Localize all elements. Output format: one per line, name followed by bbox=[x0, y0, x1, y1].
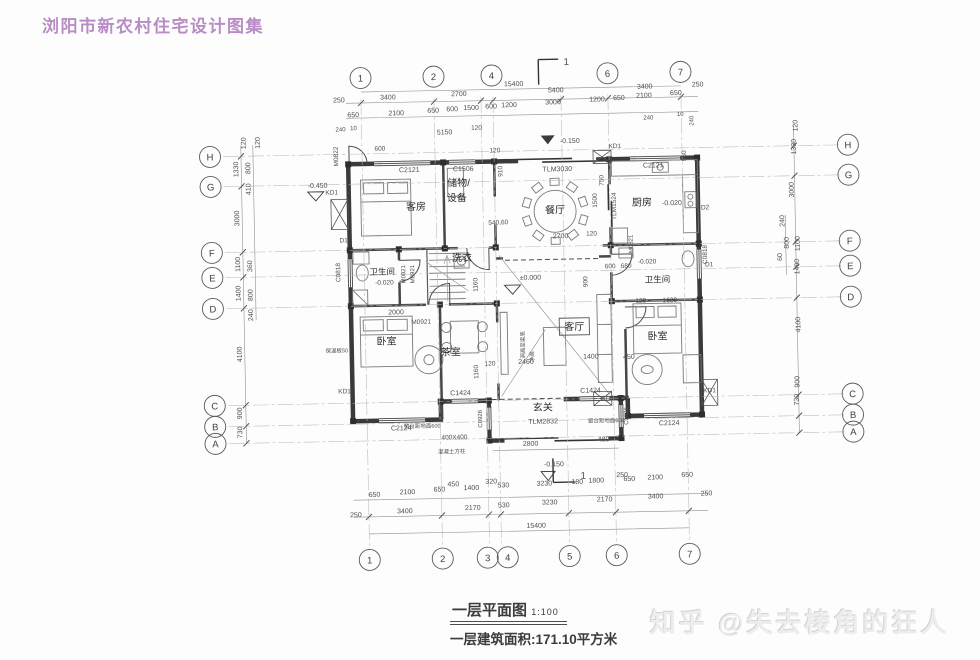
dim-label: 1160 bbox=[473, 364, 480, 378]
dim-label: 730 bbox=[794, 394, 801, 406]
room-label: 卫生间 bbox=[369, 266, 395, 276]
dim-label: 120 bbox=[635, 298, 646, 305]
room-label: 玄关 bbox=[533, 400, 553, 413]
dim-label: -0.020 bbox=[662, 200, 682, 207]
dim-label: -0.150 bbox=[544, 461, 564, 468]
dim-label: 4100 bbox=[237, 346, 244, 362]
axis-bubble-label: F bbox=[847, 236, 853, 247]
dim-label: 120 bbox=[586, 231, 597, 238]
dim-label: D2 bbox=[701, 204, 710, 211]
axis-bubble-label: H bbox=[206, 152, 213, 163]
dim-label: C2124 bbox=[659, 420, 680, 427]
dim-label: KD1 bbox=[338, 388, 351, 395]
room-label: 客房 bbox=[406, 200, 426, 213]
dim-label: 250 bbox=[692, 81, 704, 88]
dim-label: 650 bbox=[427, 108, 439, 115]
dim-label: 650 bbox=[613, 95, 625, 102]
dim-label: 600 bbox=[605, 263, 616, 270]
dim-label: ±0.000 bbox=[520, 275, 542, 282]
dim-label: 3400 bbox=[397, 508, 413, 515]
floor-plan-drawing: 124671234567HGFEDCBAHGFEDCBA154002503400… bbox=[0, 0, 980, 660]
dim-label: -0.150 bbox=[560, 138, 580, 145]
axis-bubble-label: D bbox=[209, 304, 216, 315]
dim-label: 2460 bbox=[518, 359, 534, 366]
room-label: 洗衣 bbox=[452, 251, 472, 264]
dim-label: 1500 bbox=[592, 193, 599, 208]
dim-label: 5400 bbox=[548, 87, 564, 94]
dim-label: 250 bbox=[350, 512, 362, 519]
room-label: 设备 bbox=[447, 191, 467, 204]
dim-label: 1500 bbox=[463, 105, 479, 112]
room-label: 储物/ bbox=[447, 176, 470, 189]
drawing-caption: 一层平面图 1:100 一层建筑面积:171.10平方米 bbox=[450, 599, 617, 648]
dim-label: 1 bbox=[580, 471, 586, 482]
dim-label: 600 bbox=[446, 106, 458, 113]
axis-bubble-label: C bbox=[849, 389, 856, 400]
dim-label: C1424 bbox=[580, 387, 601, 394]
dim-label: 2800 bbox=[523, 441, 539, 448]
level-marks bbox=[307, 135, 562, 485]
dim-label: 530 bbox=[497, 482, 509, 489]
axis-bubble-label: E bbox=[209, 273, 216, 284]
axis-bubble-label: F bbox=[209, 248, 215, 259]
dim-label: 3400 bbox=[380, 94, 396, 101]
dim-label: C0818 bbox=[335, 262, 342, 282]
dim-label: 240 bbox=[335, 127, 346, 133]
dim-label: 650 bbox=[681, 472, 693, 479]
dim-label: 2100 bbox=[400, 489, 416, 496]
room-label: 卧室 bbox=[647, 329, 667, 342]
dim-label: 800 bbox=[784, 237, 791, 249]
drawing-name: 一层平面图 bbox=[452, 602, 527, 619]
dim-label: 1400 bbox=[583, 353, 599, 360]
room-label: 卧室 bbox=[376, 334, 396, 347]
dim-label: 530 bbox=[498, 502, 510, 509]
dim-label: 250 bbox=[333, 97, 345, 104]
dim-label: 2000 bbox=[388, 309, 404, 316]
dim-label: C0926 bbox=[624, 406, 630, 424]
dim-label: 900 bbox=[794, 376, 801, 388]
axis-bubble-label: 7 bbox=[678, 67, 684, 78]
dim-label: 保温板50 bbox=[325, 346, 348, 354]
dim-label: 650 bbox=[347, 112, 359, 119]
room-label: 客厅 bbox=[564, 320, 584, 333]
dim-label: 2170 bbox=[597, 496, 613, 503]
dim-label: 3230 bbox=[542, 499, 558, 506]
dim-label: TLM1524 bbox=[611, 192, 619, 220]
dim-label: 1 bbox=[563, 57, 569, 68]
axis-bubble-label: 7 bbox=[687, 549, 693, 560]
axis-bubble-label: 4 bbox=[489, 71, 495, 82]
axis-bubble-label: B bbox=[212, 422, 219, 433]
axis-bubble-label: 6 bbox=[614, 551, 620, 562]
dim-label: C1424 bbox=[450, 390, 471, 397]
axis-bubble-label: 5 bbox=[567, 552, 573, 563]
axis-bubble-label: 2 bbox=[431, 72, 437, 83]
dim-label: 120 bbox=[792, 120, 799, 132]
drawing-area-note: 一层建筑面积:171.10平方米 bbox=[450, 628, 617, 648]
dim-label: 10 bbox=[350, 126, 357, 132]
dim-label: 3400 bbox=[648, 493, 664, 500]
scanned-drawing-page: 浏阳市新农村住宅设计图集 bbox=[0, 0, 980, 660]
dimension-chain-lines bbox=[240, 84, 801, 537]
dim-label: 3000 bbox=[545, 99, 561, 106]
room-label: 茶室 bbox=[441, 345, 461, 358]
dim-label: KD1 bbox=[703, 387, 716, 394]
dim-label: 1160 bbox=[472, 277, 479, 291]
dim-label: 1400 bbox=[794, 259, 801, 275]
dim-label: 1200 bbox=[501, 102, 517, 109]
dim-label: 730 bbox=[237, 426, 244, 438]
dim-label: 洞高至梁底 bbox=[518, 331, 527, 359]
axis-bubble-label: 2 bbox=[440, 554, 446, 565]
dim-label: 3000 bbox=[789, 182, 796, 198]
dim-label: 2170 bbox=[465, 505, 481, 512]
dim-label: 1100 bbox=[235, 257, 242, 272]
dim-label: D1 bbox=[705, 261, 714, 268]
axis-bubble-label: B bbox=[850, 410, 857, 421]
dim-label: 240 bbox=[689, 115, 695, 126]
dim-label: 混凝土方柱 bbox=[438, 447, 466, 456]
axis-bubble-label: 3 bbox=[485, 553, 491, 564]
dim-label: 120 bbox=[241, 137, 248, 149]
dim-label: 1680 bbox=[663, 297, 678, 304]
axis-bubble-label: G bbox=[845, 170, 853, 181]
dim-label: TLM3030 bbox=[542, 166, 572, 174]
axis-bubble-label: 1 bbox=[358, 73, 364, 84]
dim-label: -0.020 bbox=[638, 258, 657, 265]
axis-bubble-label: 6 bbox=[605, 69, 611, 80]
dim-label: 900 bbox=[582, 276, 589, 287]
dim-label: 680 bbox=[621, 263, 632, 270]
dim-label: 窗台距地面600 bbox=[588, 416, 625, 425]
dim-label: 410 bbox=[246, 183, 253, 195]
dim-label: 650 bbox=[434, 486, 446, 493]
generated-annotations: 124671234567HGFEDCBAHGFEDCBA154002503400… bbox=[198, 51, 867, 573]
dim-label: 1100 bbox=[795, 236, 802, 251]
dim-label: 800 bbox=[245, 162, 252, 174]
dim-label: -0.020 bbox=[375, 279, 394, 286]
dim-label: 1400 bbox=[464, 485, 480, 492]
dim-label: 120 bbox=[255, 137, 262, 149]
drawing-title-line: 一层平面图 1:100 bbox=[450, 599, 567, 625]
dim-label: 1800 bbox=[588, 477, 604, 484]
dim-label: 3400 bbox=[637, 83, 653, 90]
dim-label: 120 bbox=[471, 125, 482, 132]
axis-bubble-label: C bbox=[211, 401, 218, 412]
dim-label: 600 bbox=[485, 103, 497, 110]
axis-bubble-label: H bbox=[844, 140, 851, 151]
dim-label: 1330 bbox=[791, 139, 798, 155]
dim-label: C2121 bbox=[643, 162, 664, 169]
dim-label: C2121 bbox=[399, 167, 420, 174]
dim-label: KD3 bbox=[601, 395, 614, 402]
axis-bubble-label: 1 bbox=[367, 555, 373, 566]
dim-label: 900 bbox=[237, 407, 244, 419]
dim-label: 1200 bbox=[589, 96, 605, 103]
dim-label: KD1 bbox=[608, 143, 621, 150]
dim-label: M0921 bbox=[410, 264, 416, 283]
dim-label: 2100 bbox=[636, 92, 652, 99]
dim-label: 650 bbox=[369, 492, 381, 499]
dim-label: 3230 bbox=[536, 480, 552, 487]
dim-label: M0821 bbox=[401, 264, 407, 283]
dim-label: M0921 bbox=[411, 319, 431, 326]
dim-label: 240 bbox=[248, 309, 255, 321]
dim-label: D1 bbox=[339, 237, 348, 244]
dim-label: 240 bbox=[643, 115, 654, 121]
dim-label: M0822 bbox=[333, 146, 340, 166]
drawing-scale: 1:100 bbox=[531, 607, 559, 617]
dim-label: 60 bbox=[777, 253, 784, 261]
dim-label: 120 bbox=[489, 147, 500, 154]
room-label: 卫生间 bbox=[645, 274, 671, 284]
dim-label: 250 bbox=[701, 490, 713, 497]
dim-label: 15400 bbox=[504, 81, 524, 88]
axis-bubble-label: 4 bbox=[505, 553, 511, 564]
dim-label: 3000 bbox=[234, 210, 241, 226]
dim-label: 450 bbox=[623, 354, 635, 361]
dim-label: 2100 bbox=[388, 110, 404, 117]
dim-label: M0821 bbox=[629, 234, 635, 253]
dim-label: 800 bbox=[248, 289, 255, 301]
dim-label: 5150 bbox=[437, 129, 453, 136]
dim-label: 540,60 bbox=[488, 219, 508, 226]
room-label: 厨房 bbox=[632, 195, 652, 208]
dim-label: 1330 bbox=[233, 161, 240, 177]
axis-bubble-label: A bbox=[212, 439, 219, 450]
dim-label: 15400 bbox=[526, 523, 546, 530]
stair-wall bbox=[427, 249, 428, 305]
dim-label: 650 bbox=[623, 476, 635, 483]
dim-label: 10 bbox=[677, 112, 684, 118]
axis-bubble-label: A bbox=[850, 427, 857, 438]
dim-label: 320 bbox=[485, 478, 497, 485]
axis-bubble-label: D bbox=[847, 292, 854, 303]
dim-label: 120 bbox=[485, 360, 496, 367]
dim-label: KD1 bbox=[325, 189, 338, 196]
dim-label: C1506 bbox=[453, 166, 474, 173]
dim-label: 360 bbox=[247, 260, 254, 272]
dim-label: 240 bbox=[779, 215, 786, 227]
dim-label: 2100 bbox=[647, 474, 663, 481]
dim-label: 480 bbox=[598, 436, 610, 443]
dim-label: 4100 bbox=[795, 317, 802, 333]
dim-label: 650 bbox=[670, 90, 682, 97]
dim-label: 2700 bbox=[451, 91, 467, 98]
dim-label: 2700 bbox=[553, 233, 569, 240]
dim-label: 400X400 bbox=[441, 434, 468, 442]
room-label: 餐厅 bbox=[545, 203, 565, 216]
dim-label: 960 bbox=[681, 150, 688, 161]
dim-label: 750 bbox=[598, 175, 605, 186]
dim-label: TLM2832 bbox=[528, 418, 558, 426]
dim-label: 450 bbox=[447, 481, 459, 488]
watermark-text: 知乎 @失去棱角的狂人 bbox=[650, 603, 950, 640]
dim-label: 910 bbox=[497, 165, 504, 176]
axis-bubble-label: G bbox=[207, 182, 215, 193]
axis-bubble-label: E bbox=[847, 261, 854, 272]
dim-label: C0926 bbox=[478, 409, 484, 427]
dim-label: 1400 bbox=[235, 285, 242, 301]
dim-label: 600 bbox=[374, 146, 385, 153]
